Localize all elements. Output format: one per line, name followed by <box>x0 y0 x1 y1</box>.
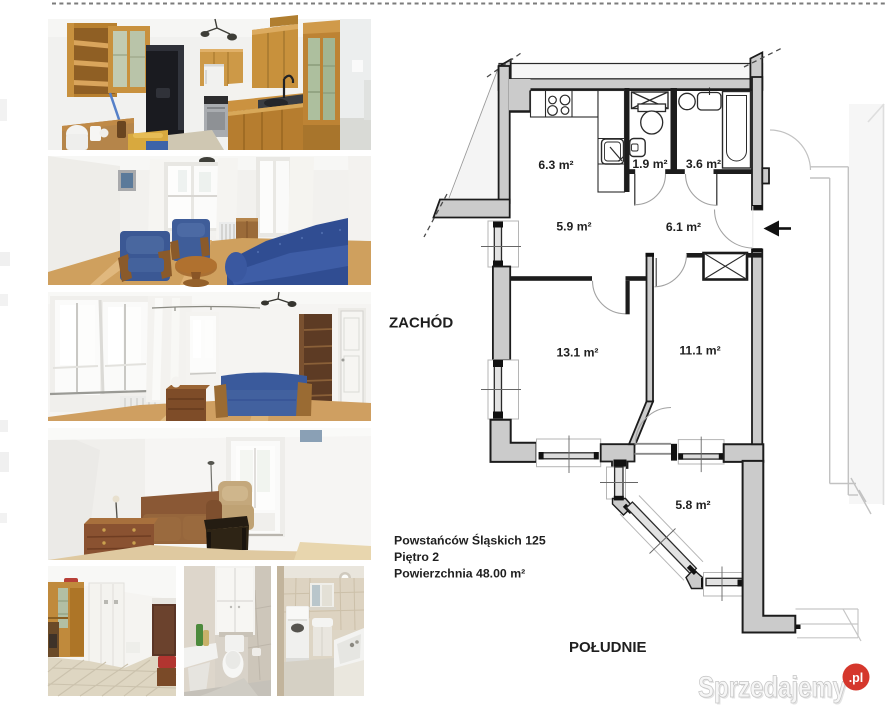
svg-text:.pl: .pl <box>849 671 864 685</box>
svg-text:Piętro 2: Piętro 2 <box>394 550 439 564</box>
svg-text:POŁUDNIE: POŁUDNIE <box>569 639 647 656</box>
svg-text:5.8 m²: 5.8 m² <box>675 498 710 512</box>
svg-text:3.6 m²: 3.6 m² <box>686 157 721 171</box>
svg-text:6.1 m²: 6.1 m² <box>666 220 701 234</box>
svg-text:5.9 m²: 5.9 m² <box>556 220 591 234</box>
svg-text:6.3 m²: 6.3 m² <box>538 158 573 172</box>
svg-text:11.1 m²: 11.1 m² <box>679 344 720 358</box>
svg-text:13.1 m²: 13.1 m² <box>556 346 598 360</box>
svg-text:Powierzchnia 48.00 m²: Powierzchnia 48.00 m² <box>394 567 525 581</box>
svg-text:ZACHÓD: ZACHÓD <box>389 314 453 332</box>
svg-text:Sprzedajemy: Sprzedajemy <box>698 669 846 703</box>
svg-text:1.9 m²: 1.9 m² <box>632 157 667 171</box>
svg-text:Powstańców Śląskich 125: Powstańców Śląskich 125 <box>394 533 546 548</box>
